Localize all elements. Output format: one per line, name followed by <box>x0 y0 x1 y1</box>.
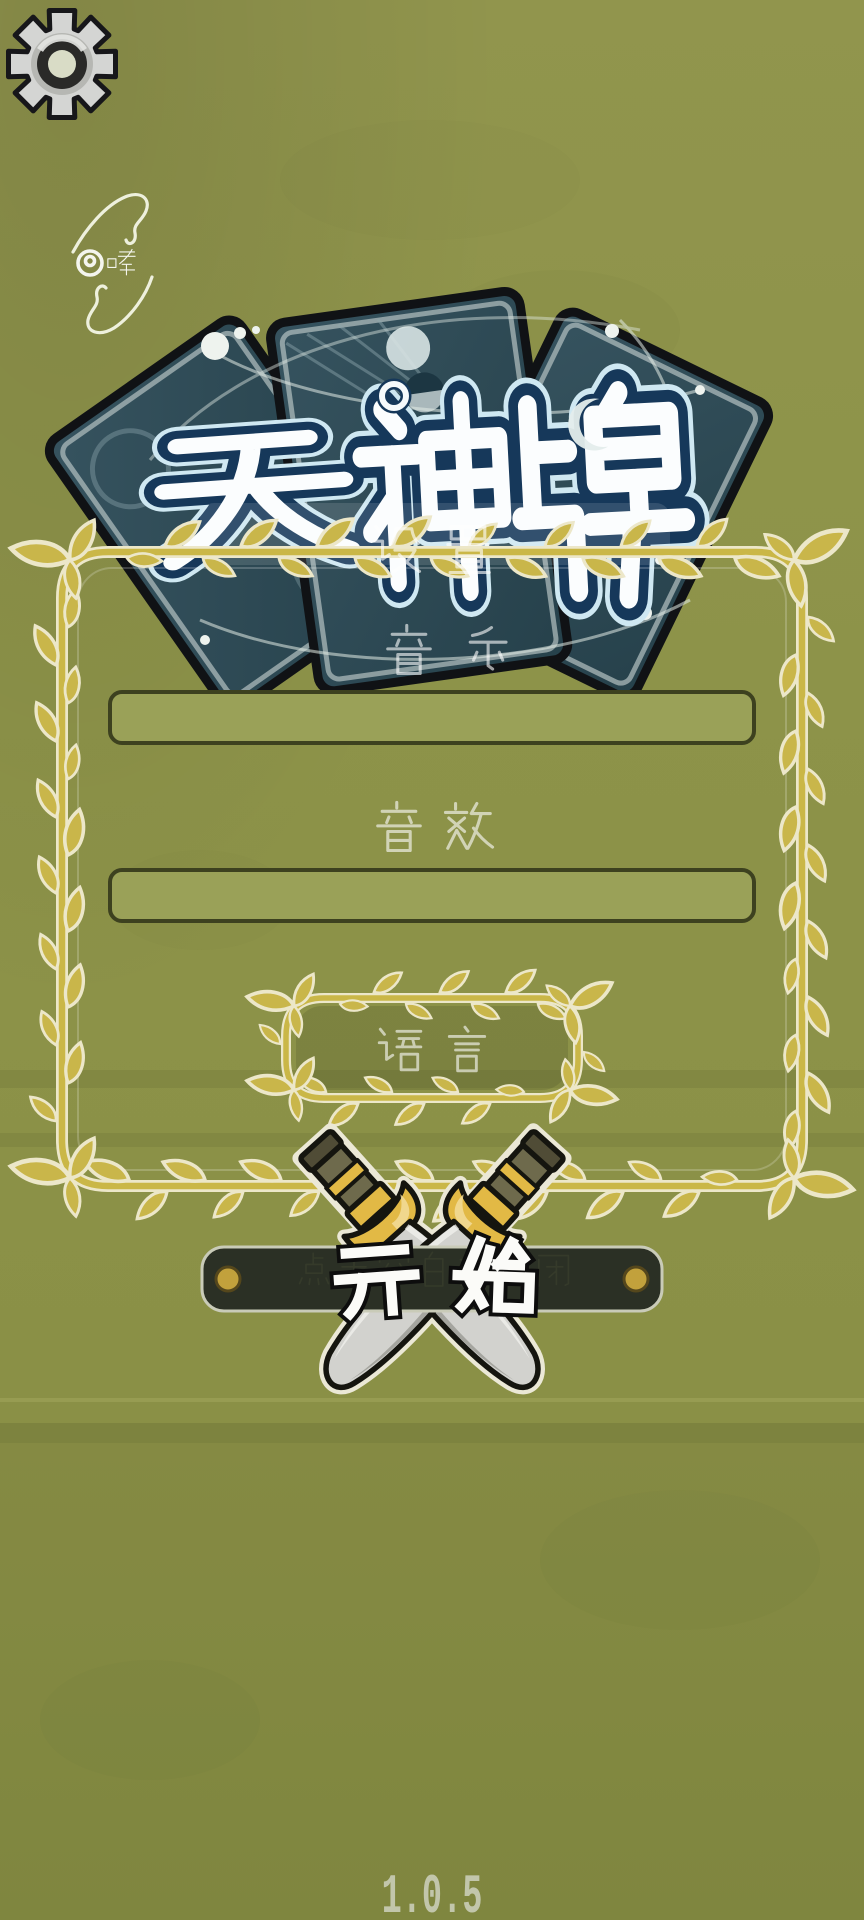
svg-text:1.0.5: 1.0.5 <box>382 1866 483 1920</box>
